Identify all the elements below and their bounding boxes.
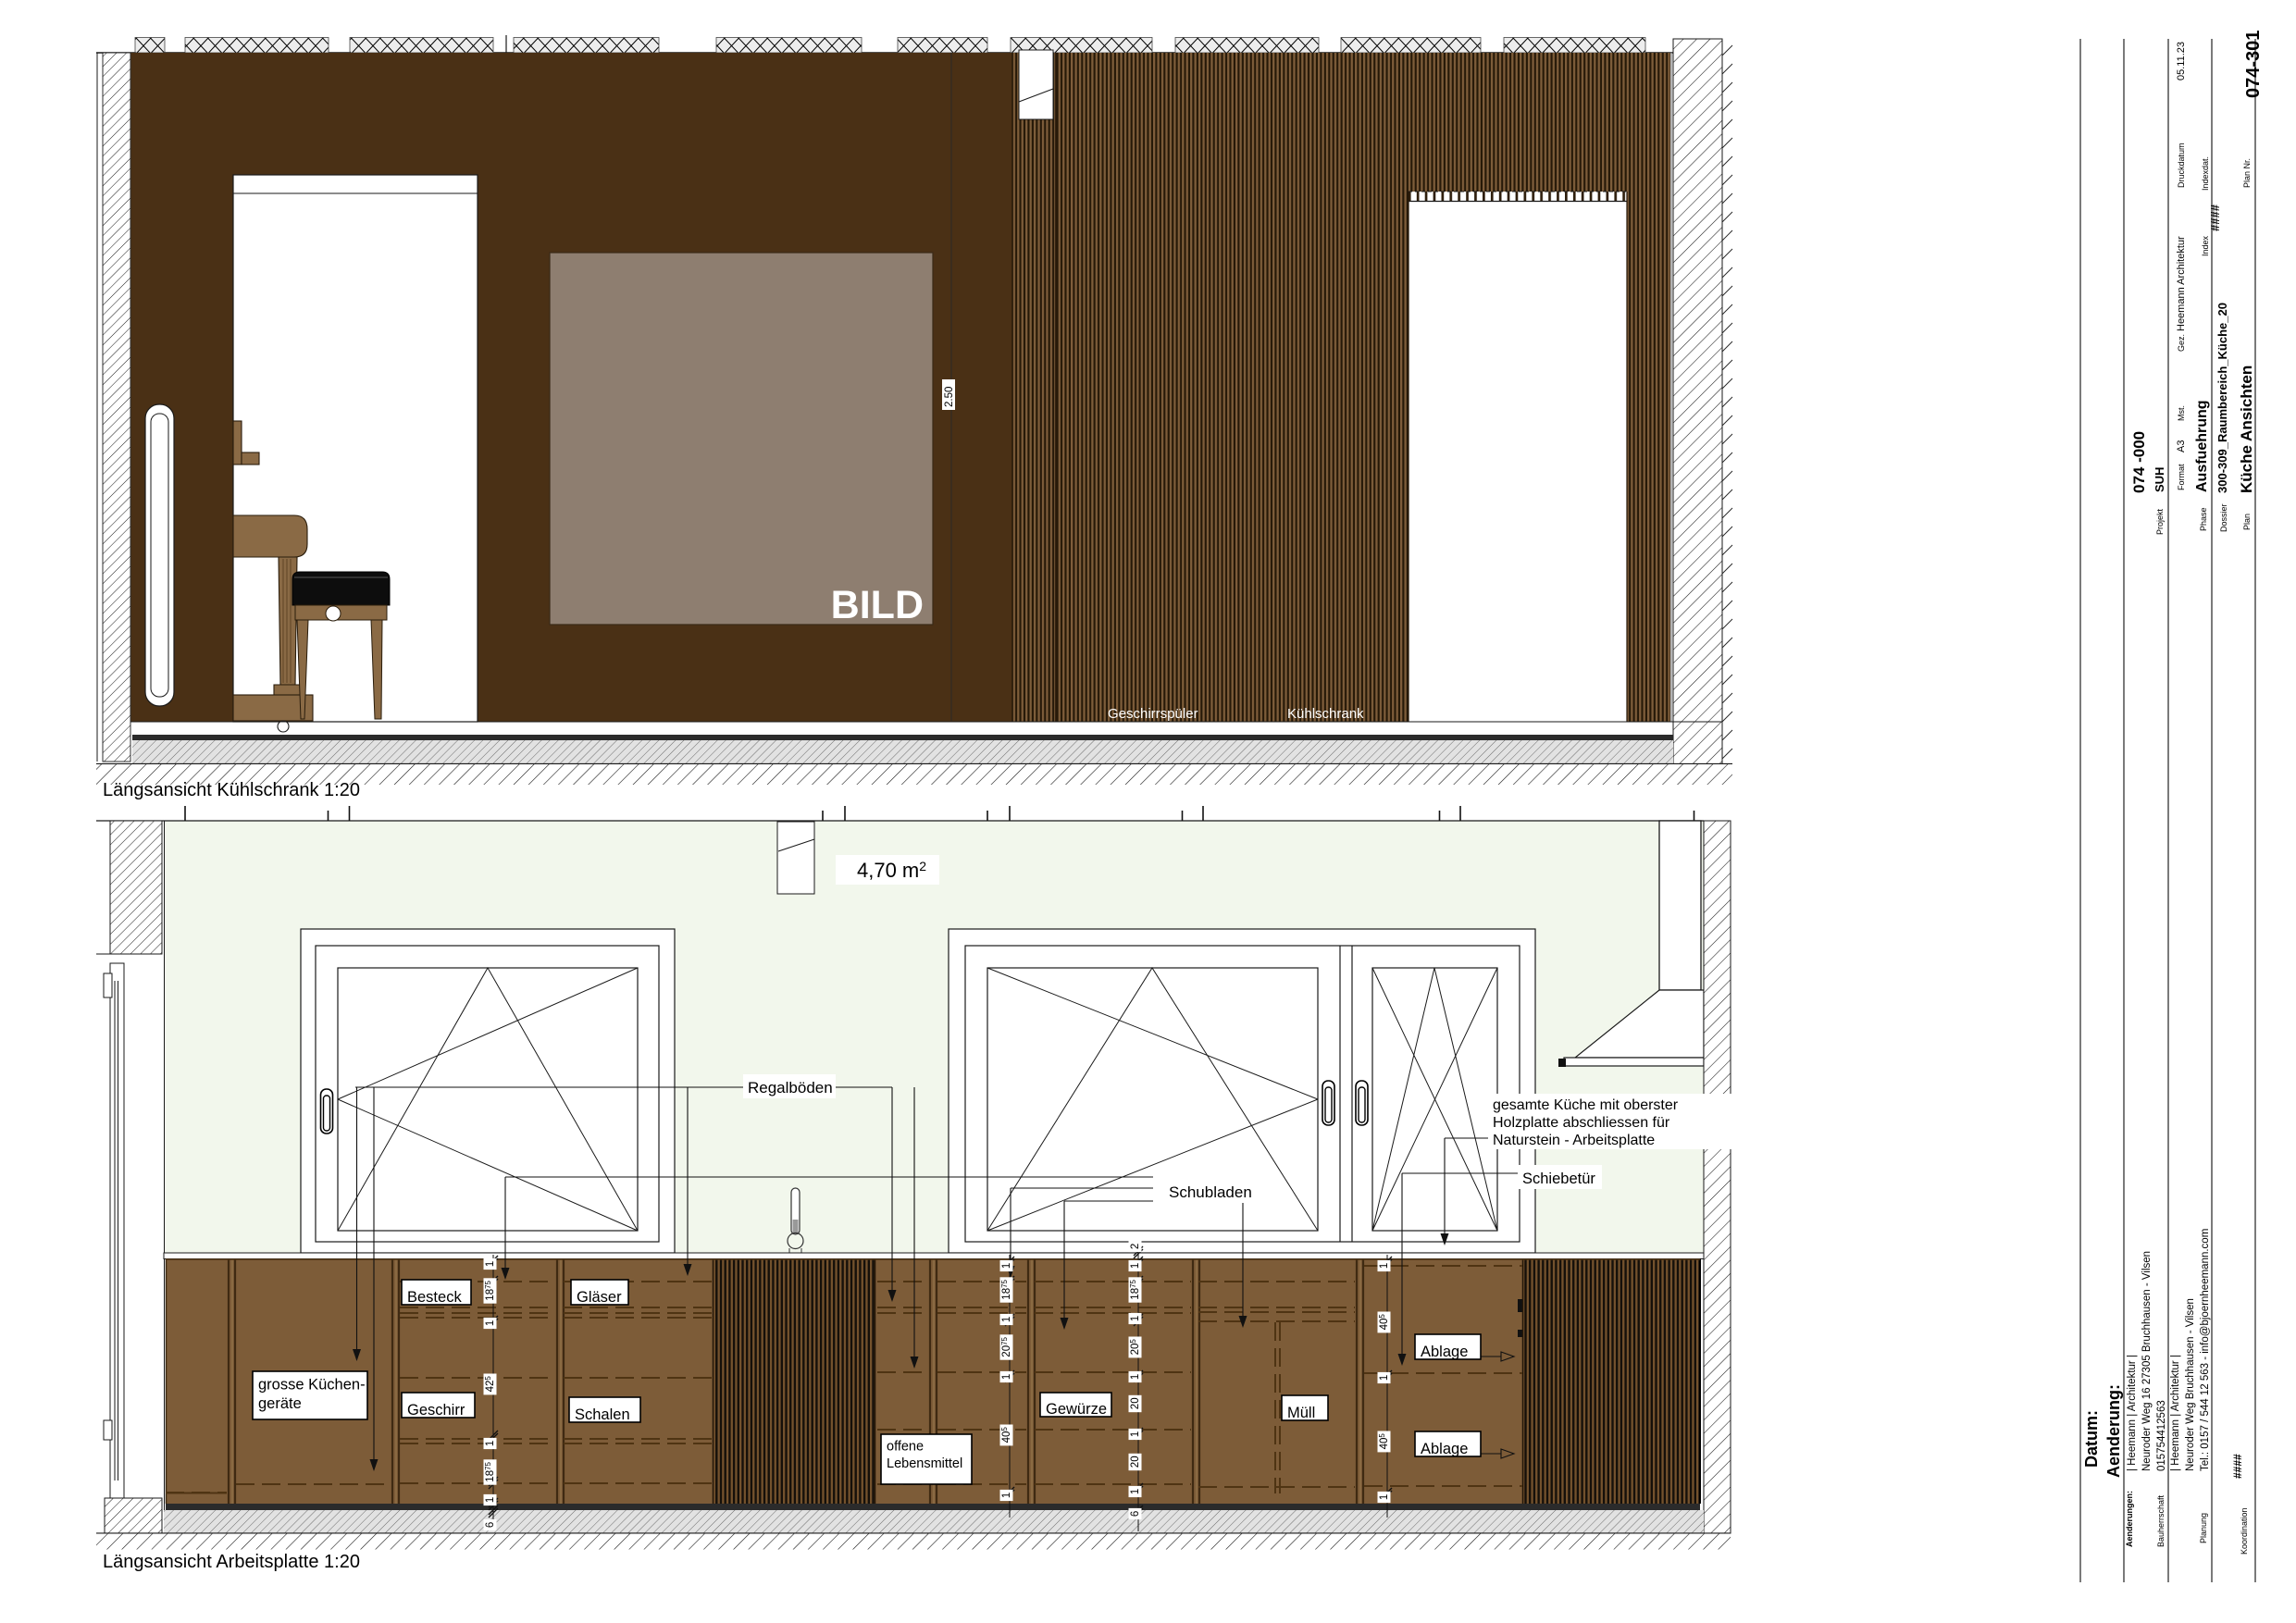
svg-text:20: 20 — [1130, 1397, 1141, 1409]
svg-text:Neuroder Weg Bruchhausen - Vil: Neuroder Weg Bruchhausen - Vilsen — [2185, 1298, 2196, 1471]
svg-text:Küche Ansichten: Küche Ansichten — [2238, 365, 2255, 493]
svg-text:1: 1 — [1001, 1493, 1012, 1498]
svg-text:Müll: Müll — [1287, 1405, 1315, 1421]
svg-text:Aenderungen:: Aenderungen: — [2125, 1491, 2134, 1547]
svg-text:| Heemann | Architektur |: | Heemann | Architektur | — [2170, 1355, 2181, 1471]
svg-text:Lebensmittel: Lebensmittel — [887, 1456, 962, 1471]
svg-text:1: 1 — [1130, 1431, 1141, 1437]
svg-text:Datum:: Datum: — [2082, 1410, 2101, 1468]
svg-text:20: 20 — [1130, 1456, 1141, 1468]
svg-text:offene: offene — [887, 1440, 924, 1455]
svg-text:015754412563: 015754412563 — [2156, 1400, 2167, 1471]
svg-text:grosse Küchen-: grosse Küchen- — [258, 1377, 366, 1394]
svg-text:Geschirr: Geschirr — [407, 1402, 465, 1419]
svg-text:1: 1 — [1130, 1489, 1141, 1494]
svg-text:Ablage: Ablage — [1421, 1441, 1468, 1457]
svg-text:gesamte Küche mit oberster: gesamte Küche mit oberster — [1493, 1097, 1679, 1113]
svg-text:4,70 m2: 4,70 m2 — [857, 859, 926, 882]
svg-text:300-309_Raumbereich_Küche_20: 300-309_Raumbereich_Küche_20 — [2215, 303, 2229, 493]
svg-text:Heemann Architektur: Heemann Architektur — [2176, 236, 2187, 331]
svg-text:Ausfuehrung: Ausfuehrung — [2194, 400, 2210, 492]
svg-text:1: 1 — [1130, 1374, 1141, 1380]
svg-text:Index: Index — [2201, 235, 2210, 256]
svg-text:2: 2 — [1130, 1244, 1141, 1249]
svg-text:A3: A3 — [2176, 440, 2187, 452]
svg-text:Format: Format — [2177, 464, 2186, 490]
svg-text:1: 1 — [1130, 1263, 1141, 1269]
svg-text:Plan: Plan — [2242, 514, 2252, 530]
svg-text:Besteck: Besteck — [407, 1289, 462, 1306]
svg-text:Planung: Planung — [2199, 1513, 2208, 1543]
svg-text:Holzplatte abschliessen für: Holzplatte abschliessen für — [1493, 1115, 1670, 1131]
svg-text:1: 1 — [485, 1261, 496, 1267]
svg-text:Schalen: Schalen — [575, 1406, 630, 1423]
svg-text:074 -000: 074 -000 — [2130, 431, 2148, 493]
svg-text:Aenderung:: Aenderung: — [2104, 1384, 2123, 1478]
svg-text:Projekt: Projekt — [2155, 508, 2165, 535]
svg-text:1: 1 — [485, 1320, 496, 1326]
svg-text:1: 1 — [1001, 1374, 1012, 1380]
svg-text:geräte: geräte — [258, 1395, 302, 1412]
svg-text:Phase: Phase — [2199, 507, 2208, 531]
svg-text:1: 1 — [1130, 1316, 1141, 1321]
svg-text:1: 1 — [1379, 1494, 1390, 1500]
svg-text:Längsansicht Kühlschrank 1:20: Längsansicht Kühlschrank 1:20 — [103, 780, 360, 800]
svg-text:Kühlschrank: Kühlschrank — [1287, 706, 1364, 722]
svg-text:Schiebetür: Schiebetür — [1522, 1171, 1595, 1187]
svg-text:1: 1 — [1379, 1375, 1390, 1381]
svg-text:Koordination: Koordination — [2240, 1507, 2249, 1555]
svg-text:1: 1 — [485, 1441, 496, 1446]
svg-text:Gläser: Gläser — [577, 1289, 622, 1306]
svg-text:Druckdatum: Druckdatum — [2177, 142, 2186, 188]
svg-text:1: 1 — [1001, 1263, 1012, 1269]
svg-text:2.50: 2.50 — [944, 387, 955, 407]
svg-text:Indexdat.: Indexdat. — [2201, 156, 2210, 191]
svg-text:Dossier: Dossier — [2219, 503, 2228, 532]
svg-text:Naturstein - Arbeitsplatte: Naturstein - Arbeitsplatte — [1493, 1133, 1655, 1148]
svg-text:####: #### — [2208, 204, 2222, 231]
svg-text:Tel.: 0157 / 544 12 563 - info: Tel.: 0157 / 544 12 563 - info@bjoernhee… — [2200, 1229, 2211, 1471]
svg-text:05.11.23: 05.11.23 — [2176, 42, 2187, 81]
svg-text:SUH: SUH — [2153, 467, 2166, 492]
svg-text:####: #### — [2231, 1454, 2244, 1479]
svg-text:1: 1 — [1379, 1263, 1390, 1269]
svg-text:Regalböden: Regalböden — [748, 1079, 833, 1096]
svg-text:074-301: 074-301 — [2243, 31, 2264, 98]
svg-text:Mst.: Mst. — [2177, 405, 2186, 421]
svg-text:| Heemann | Architektur |: | Heemann | Architektur | — [2127, 1355, 2138, 1471]
svg-text:Plan Nr.: Plan Nr. — [2242, 158, 2252, 188]
svg-text:Gewürze: Gewürze — [1046, 1401, 1107, 1418]
svg-text:Ablage: Ablage — [1421, 1344, 1468, 1360]
svg-text:Neuroder Weg 16 27305 Bruchhau: Neuroder Weg 16 27305 Bruchhausen - Vils… — [2141, 1251, 2153, 1471]
svg-text:1: 1 — [1001, 1317, 1012, 1322]
svg-text:Schubladen: Schubladen — [1169, 1183, 1252, 1201]
svg-text:BILD: BILD — [831, 583, 924, 627]
svg-text:6: 6 — [1130, 1511, 1141, 1517]
svg-text:Bauherrschaft: Bauherrschaft — [2156, 1494, 2166, 1547]
svg-text:6: 6 — [485, 1522, 496, 1528]
svg-text:1: 1 — [485, 1497, 496, 1503]
svg-text:Gez.: Gez. — [2177, 334, 2186, 352]
svg-text:Längsansicht Arbeitsplatte 1:2: Längsansicht Arbeitsplatte 1:20 — [103, 1552, 360, 1572]
svg-text:Geschirrspüler: Geschirrspüler — [1108, 706, 1198, 722]
